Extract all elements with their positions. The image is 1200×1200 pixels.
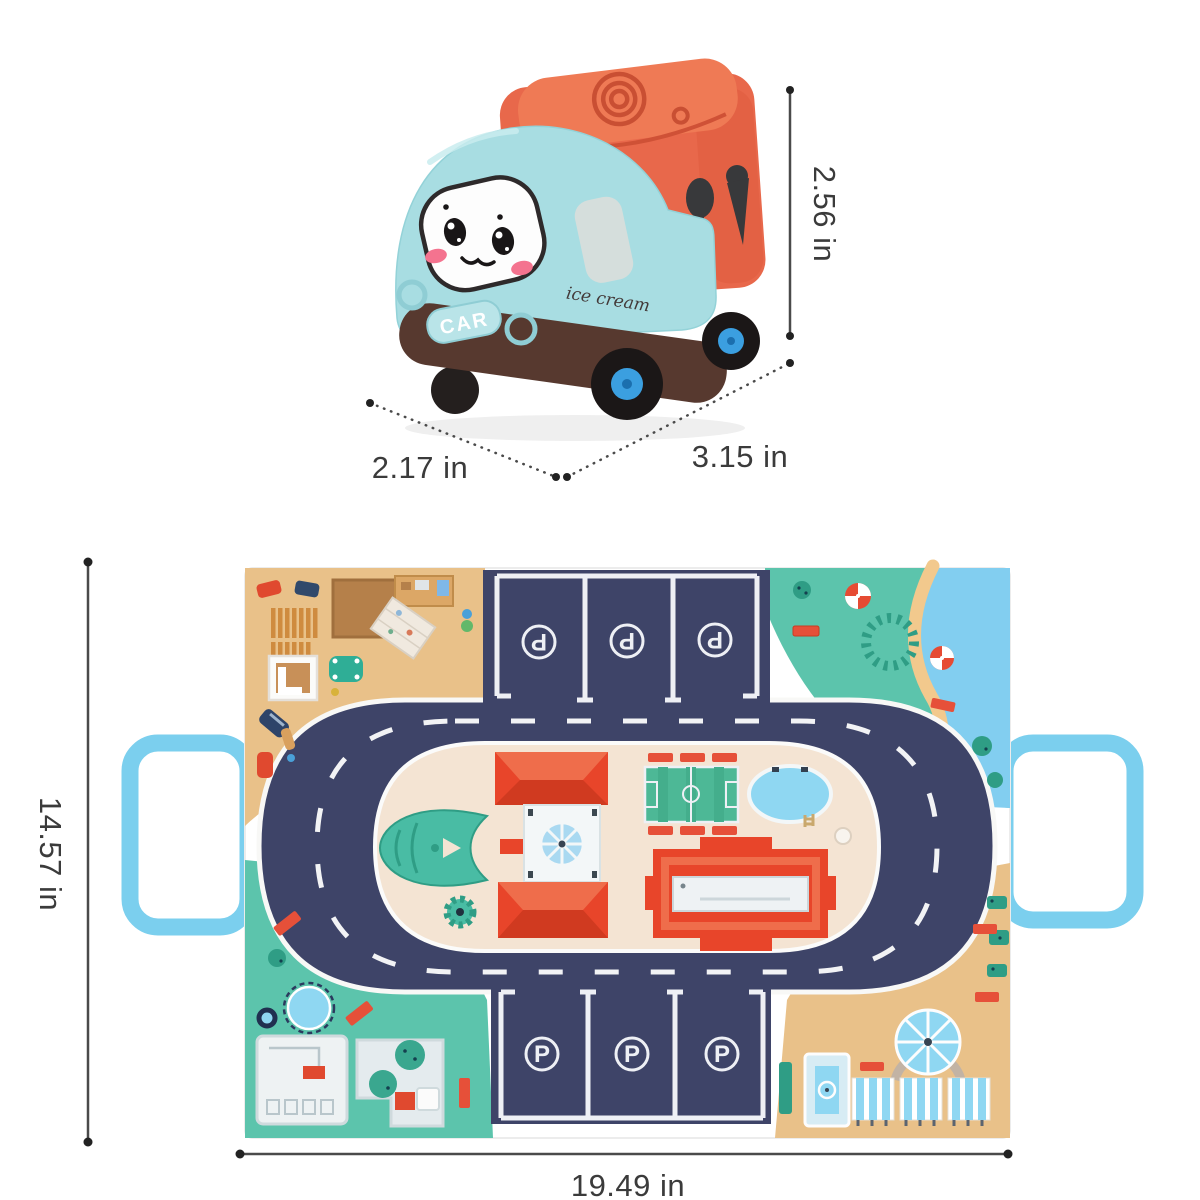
- mat-handle-right: [1005, 743, 1135, 920]
- parking-marker-p: P: [714, 1041, 730, 1068]
- parking-marker-p: P: [534, 1041, 550, 1068]
- island-pavilion-bottom: [498, 882, 608, 938]
- mat-width-label: 19.49 in: [538, 1168, 718, 1200]
- parking-marker-p: P: [624, 1041, 640, 1068]
- car-shadow: [405, 415, 745, 441]
- mat-height-label: 14.57 in: [32, 764, 68, 944]
- island-carousel-building: [524, 805, 600, 882]
- illustration-canvas: CAR ice cream: [0, 0, 1200, 1200]
- parking-lot-bottom: P P P: [491, 986, 771, 1124]
- product-dimension-diagram: CAR ice cream: [0, 0, 1200, 1200]
- island-pavilion-top: [495, 752, 608, 805]
- car-wheel-rear: [702, 312, 760, 370]
- parking-marker-p: P: [619, 627, 635, 654]
- parasol-icon: [930, 646, 954, 670]
- market-stalls-icon: [852, 1078, 990, 1126]
- car-wheel-far: [431, 366, 479, 414]
- car-illustration: CAR ice cream: [395, 55, 767, 441]
- island-amphitheater: [380, 810, 487, 886]
- island-shell: [835, 828, 851, 844]
- parking-marker-p: P: [531, 628, 547, 655]
- mat-handle-left: [130, 743, 248, 927]
- parking-lot-top: P P P: [483, 570, 770, 710]
- car-width-label: 2.17 in: [330, 450, 510, 486]
- island-school-building: [645, 837, 836, 951]
- mat-width-dimension-line: [236, 1150, 1013, 1159]
- car-length-label: 3.15 in: [650, 439, 830, 475]
- mat-height-dimension-line: [84, 558, 93, 1147]
- parasol-icon: [845, 583, 871, 609]
- car-height-dimension-line: [786, 86, 794, 340]
- car-wheel-front: [591, 348, 663, 420]
- parking-marker-p: P: [707, 626, 723, 653]
- play-mat-illustration: P P P P P P: [130, 566, 1135, 1138]
- car-height-label: 2.56 in: [806, 124, 842, 304]
